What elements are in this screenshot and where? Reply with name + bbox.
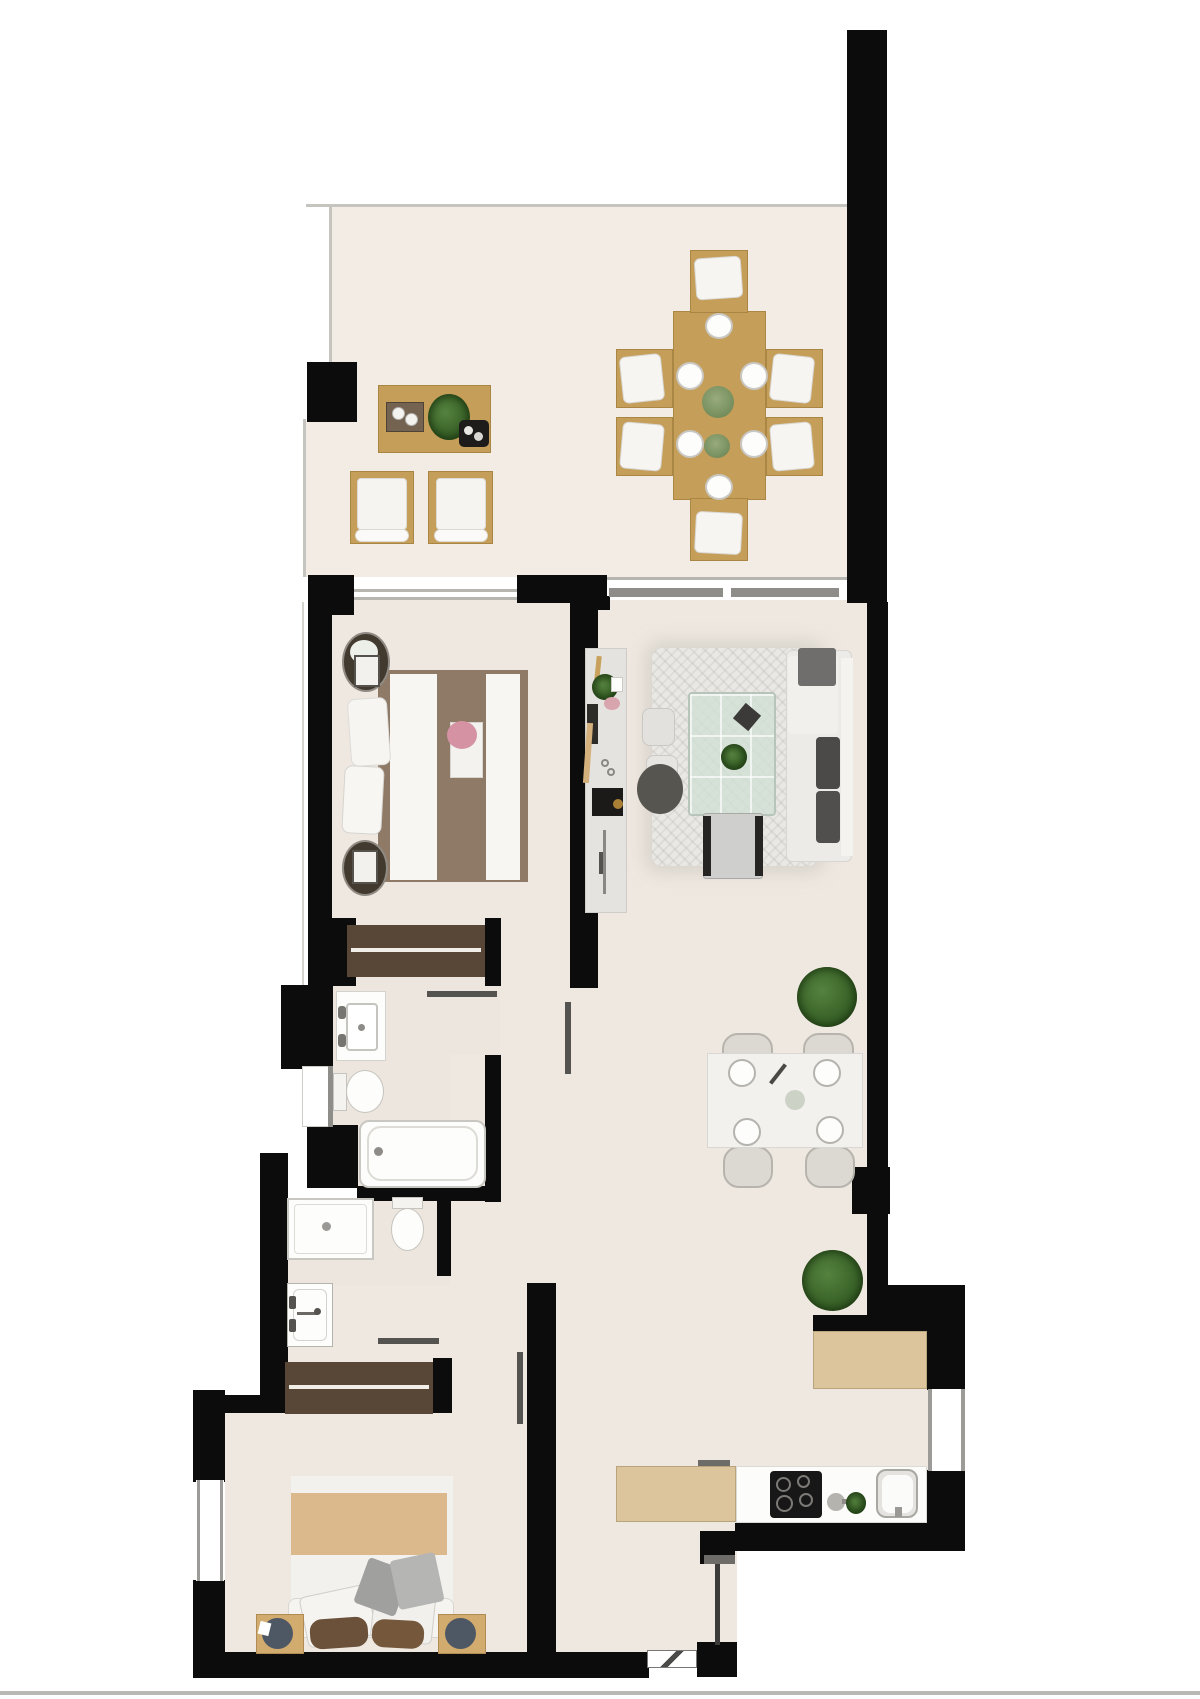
wall-bottom-long [193,1652,649,1678]
utility-hinge-1 [289,1296,296,1309]
dining-plate-3 [733,1118,761,1146]
bathroom1-tap-2 [338,1034,346,1047]
outdoor-plate-right-2 [740,430,768,458]
terrace-rail-left-upper [329,204,332,366]
bathtub-inner [367,1126,478,1181]
hob-ring-4 [799,1493,813,1507]
wall-right-lower [867,1213,888,1287]
kitchen-window-line-b [961,1389,965,1471]
living-pouf-1 [642,708,675,746]
kitchen-herb-plant [846,1492,866,1514]
outdoor-chair-right-2-pillow [769,421,815,471]
wardrobe-1-shelf-line [351,948,481,952]
terrace-rail-top [306,204,847,207]
sideboard-flower [604,697,620,710]
bathroom1-sink-drain [358,1024,365,1031]
bedroom2-window-line-a [197,1480,200,1581]
hall-plant-2 [802,1250,863,1311]
hob-ring-3 [776,1495,793,1512]
bedroom1-window-line-b [354,597,517,600]
bathroom1-tap-1 [338,1006,346,1019]
utility-door-inner [293,1289,327,1341]
hall-plant-1 [797,967,857,1027]
sofa-cushion-1 [816,737,840,789]
outdoor-chair-left-1-pillow [619,353,666,404]
wall-terrace-right [847,30,887,603]
sideboard-ring-2 [607,768,615,776]
wall-living-right [867,602,888,1168]
dining-centerpiece [785,1090,805,1110]
wall-kitchen-right-upper [927,1315,965,1390]
terrace-rail-left-lower [303,419,306,577]
wall-wardrobe1-right-stub [485,918,501,986]
armchair-arm-left [703,816,711,876]
exterior-edge-line [302,602,304,986]
outdoor-chair-right-1-pillow [769,353,816,404]
sofa-corner-throw [798,648,836,686]
bed1-flowers [447,721,477,749]
wall-wardrobe2-right-stub [433,1358,452,1413]
wall-bedroom2-left-lower [193,1580,225,1654]
dining-plate-1 [728,1059,756,1087]
bed2-accent-pillow-2 [389,1552,444,1610]
outdoor-plate-top [705,313,733,339]
wall-counter-band [813,1315,927,1331]
bedroom1-window-line-a [354,589,517,592]
shower-drain [322,1222,331,1231]
wall-bedroom1-left [308,602,332,986]
sofa-cushion-2 [816,791,840,843]
wall-hall-left [485,1055,501,1202]
toilet1-tank [333,1073,347,1111]
sofa-backrest [841,658,853,856]
terrace-tray-dot-1 [464,426,473,435]
hob-ring-1 [776,1477,791,1492]
wardrobe1-door-leaf [427,991,497,997]
outdoor-chair-left-2-pillow [619,421,665,471]
living-slider-bar-a [609,588,723,597]
outdoor-chair-top-pillow [694,255,744,300]
terrace-pillar [307,362,357,422]
outdoor-plate-left-1 [676,362,704,390]
wall-terrace-seg2 [517,575,607,603]
sideboard-gold-dot [613,799,623,809]
floor-plan [0,0,1200,1699]
kitchen-sink-tap [895,1507,902,1517]
living-slider-frame [607,577,847,580]
hob-ring-2 [797,1475,810,1488]
outdoor-centerpiece-2 [704,434,730,458]
utility-hinge-2 [289,1319,296,1332]
sideboard-drawer-line [603,830,606,894]
bed2-nightstand-2-rug [445,1618,476,1649]
coffee-table-plant [721,744,747,770]
bed2-blanket [291,1493,447,1555]
bathroom2-door-leaf [378,1338,439,1344]
terrace-tray-dot-2 [474,432,483,441]
bed2-brown-cushion-1 [309,1616,369,1650]
armchair-arm-right [755,816,763,876]
bedroom2-door-leaf [517,1352,523,1424]
kitchen-window-glass [928,1389,965,1471]
page-bottom-line [0,1691,1200,1695]
wall-dining-chunk [852,1167,890,1214]
toilet2-bowl [391,1208,424,1251]
dining-plate-4 [816,1116,844,1144]
shower-inner [294,1204,367,1254]
kitchen-counter-left [616,1466,736,1522]
outdoor-plate-left-2 [676,430,704,458]
bedroom1-door-leaf [565,1002,571,1074]
bed1-pillow-2 [341,765,385,835]
wall-tub-left-block [307,1125,358,1188]
terrace-cup-2 [405,413,418,426]
outdoor-plate-right-1 [740,362,768,390]
entry-door-leaf [715,1562,720,1645]
dining-chair-bottom-left [723,1146,773,1188]
outdoor-centerpiece-1 [702,386,734,418]
toilet1-bowl [346,1070,384,1113]
dining-chair-bottom-right [805,1146,855,1188]
lounge-chair-1-roll [355,529,409,542]
wall-kitchen-bottom [735,1523,965,1551]
sideboard-box [611,677,623,692]
entry-threshold [647,1650,697,1668]
sideboard-handle [599,852,603,874]
lounge-chair-2-roll [434,529,488,542]
bed1-duvet-right [486,674,520,880]
utility-handle-dot [314,1308,321,1315]
bed1-pillow-1 [347,697,392,768]
bedroom2-window-line-b [220,1480,223,1581]
kitchen-counter-top-right [813,1331,927,1389]
bed1-nightstand-2-frame [352,850,378,884]
wardrobe-2-shelf-line [289,1385,429,1389]
wall-tub-bottom [357,1186,501,1201]
entry-door-jamb [704,1555,735,1564]
lounge-chair-1-cushion [357,478,407,530]
wall-bathroom2-left [260,1153,288,1399]
lounge-chair-2-cushion [436,478,486,530]
dining-plate-2 [813,1059,841,1087]
bed1-nightstand-1-frame [354,655,380,687]
wall-bedroom2-right [527,1283,556,1655]
terrace-cup-1 [392,407,405,420]
living-slider-bar-b [731,588,839,597]
kitchen-window-line-a [928,1389,932,1471]
bed2-brown-cushion-2 [371,1619,424,1650]
outdoor-chair-bottom-pillow [694,511,743,555]
wall-bathroom1-left-block [281,985,333,1069]
wall-bedroom2-left-upper [193,1390,225,1482]
outdoor-plate-bottom [705,474,733,500]
living-throw-blanket [637,764,683,814]
sideboard-ring-1 [601,759,609,767]
wall-step-horizontal [867,1285,965,1315]
bed1-duvet-left [390,674,437,880]
wall-entry-bottom [697,1642,737,1677]
bathtub-faucet [374,1147,383,1156]
living-armchair [703,813,763,879]
